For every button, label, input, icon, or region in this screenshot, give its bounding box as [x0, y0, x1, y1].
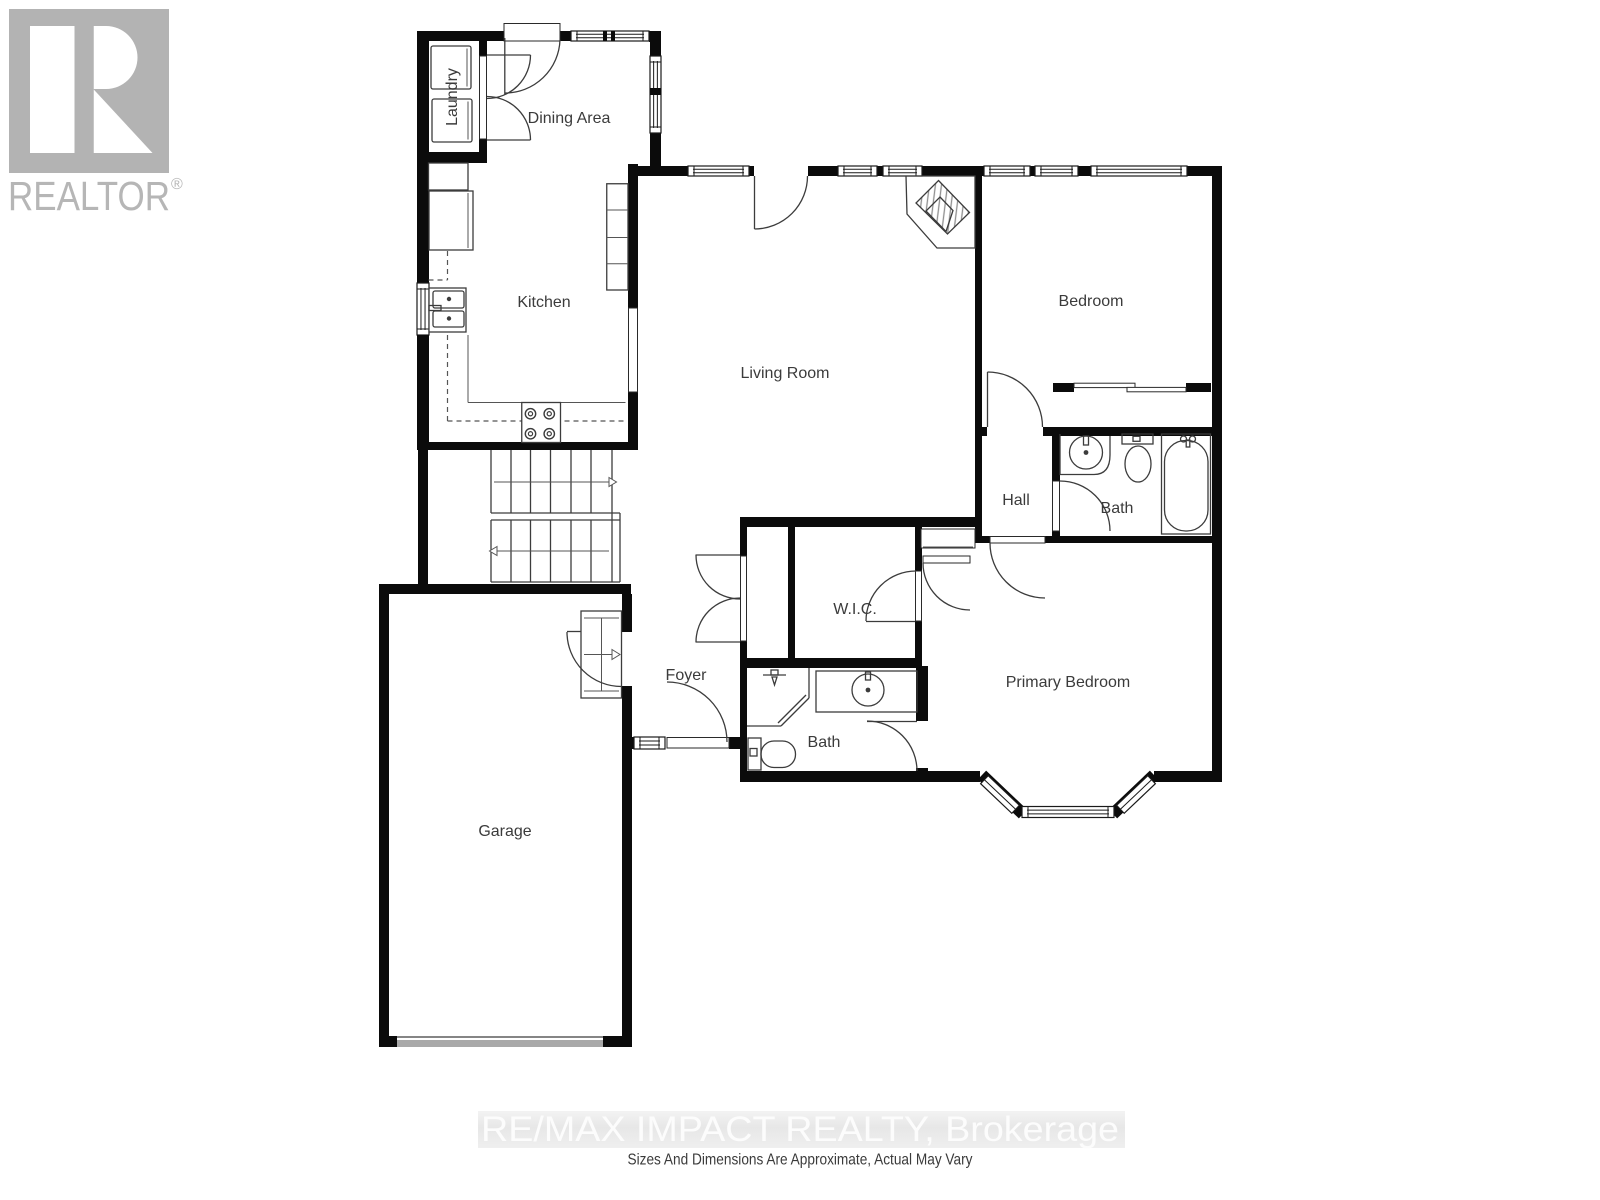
svg-text:Kitchen: Kitchen — [517, 294, 570, 311]
svg-text:Laundry: Laundry — [444, 68, 461, 126]
svg-text:Hall: Hall — [1002, 492, 1030, 509]
svg-text:Garage: Garage — [478, 823, 531, 840]
svg-text:Foyer: Foyer — [666, 667, 708, 684]
svg-text:REALTOR: REALTOR — [8, 173, 170, 219]
svg-text:Bedroom: Bedroom — [1059, 293, 1124, 310]
svg-text:Living Room: Living Room — [741, 365, 830, 382]
svg-text:Dining Area: Dining Area — [528, 110, 611, 127]
svg-text:®: ® — [171, 176, 183, 193]
svg-text:Primary Bedroom: Primary Bedroom — [1006, 674, 1130, 691]
svg-text:Sizes And Dimensions Are Appro: Sizes And Dimensions Are Approximate, Ac… — [628, 1152, 973, 1169]
svg-text:Bath: Bath — [1101, 500, 1134, 517]
svg-text:RE/MAX IMPACT REALTY, Brokerag: RE/MAX IMPACT REALTY, Brokerage — [481, 1110, 1119, 1149]
svg-text:Bath: Bath — [808, 734, 841, 751]
svg-text:W.I.C.: W.I.C. — [833, 601, 877, 618]
